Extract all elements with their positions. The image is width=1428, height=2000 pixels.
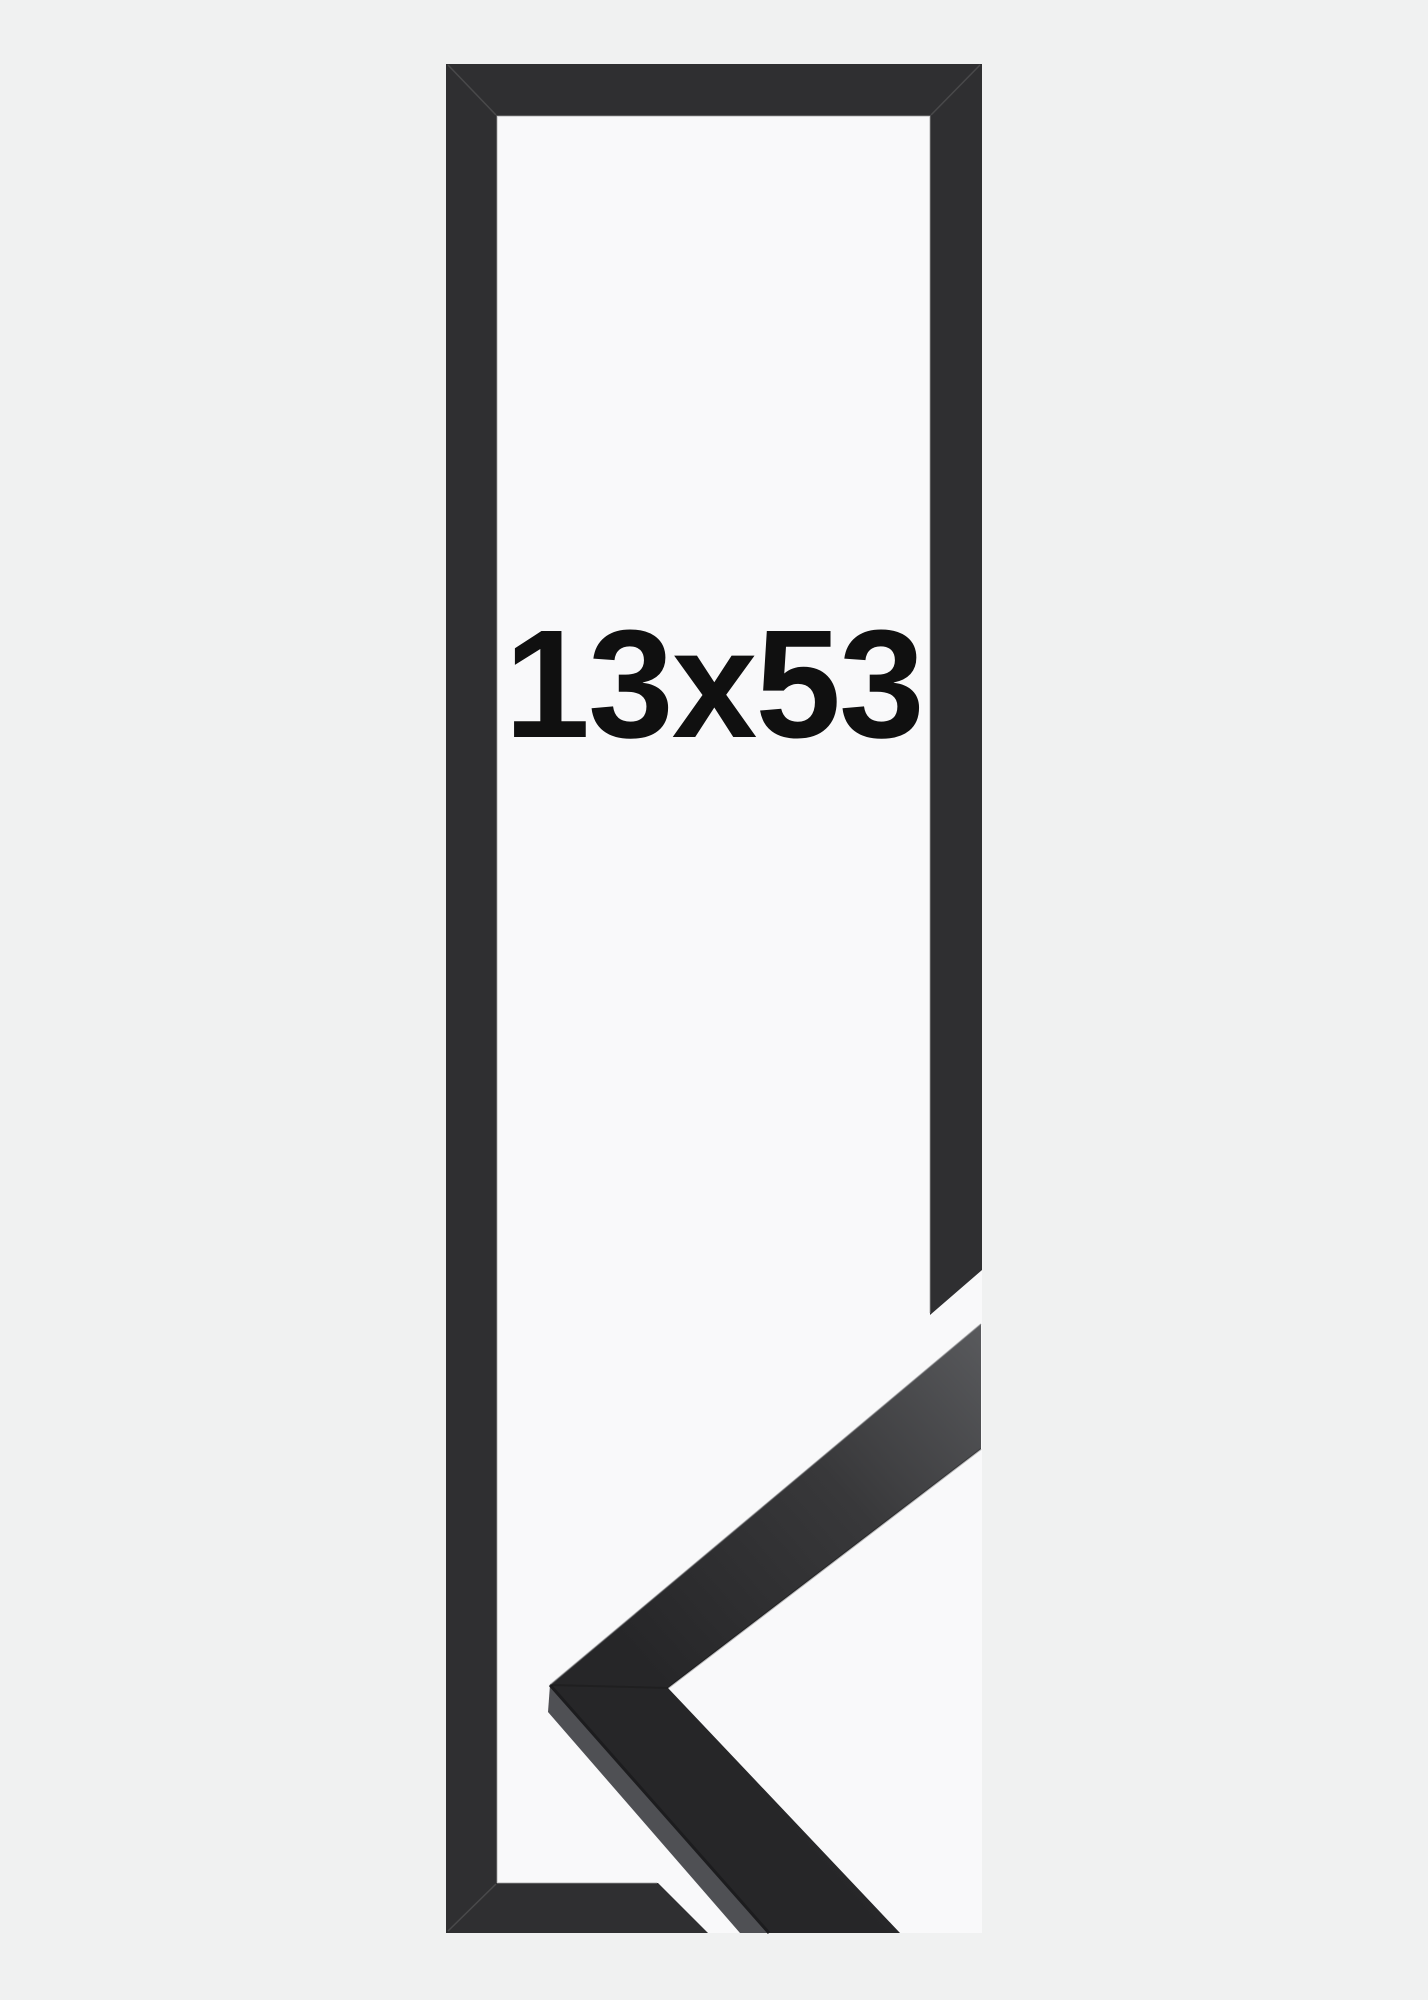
frame-product-image: 13x53 — [0, 0, 1428, 2000]
size-label: 13x53 — [497, 584, 930, 784]
frame-right-bar — [930, 64, 982, 1315]
frame-left-bar — [446, 64, 497, 1933]
frame-top-bar — [446, 64, 982, 116]
frame-product-scene — [0, 0, 1428, 2000]
